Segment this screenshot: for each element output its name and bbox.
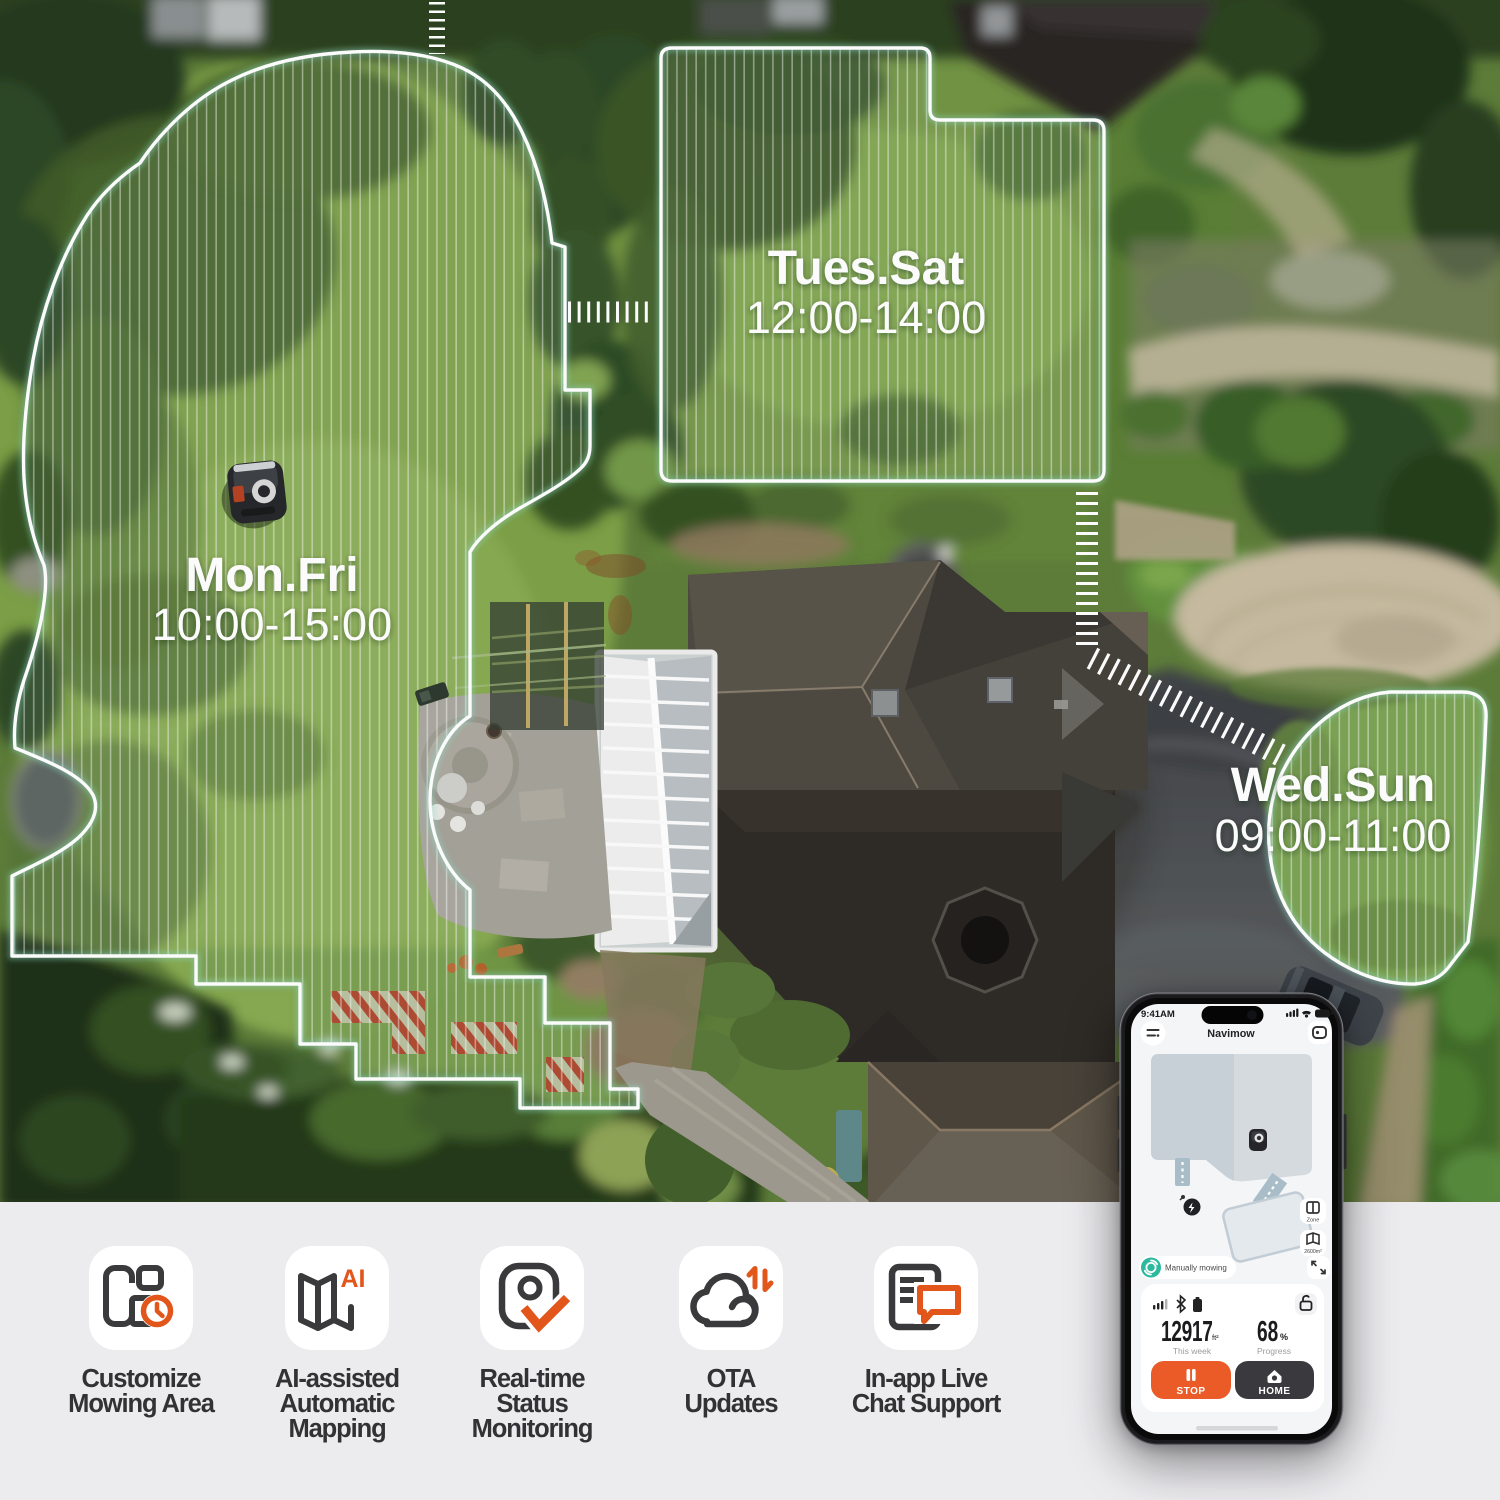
svg-text:Zone: Zone (1307, 1218, 1320, 1224)
svg-text:12917: 12917 (1161, 1316, 1213, 1348)
svg-text:STOP: STOP (1176, 1386, 1205, 1397)
svg-text:Navimow: Navimow (1207, 1028, 1255, 1040)
svg-text:HOME: HOME (1259, 1386, 1291, 1397)
svg-text:AI: AI (341, 1265, 366, 1293)
svg-text:ft²: ft² (1212, 1333, 1219, 1342)
svg-text:Manually mowing: Manually mowing (1165, 1264, 1227, 1273)
svg-text:Tues.Sat: Tues.Sat (768, 242, 965, 295)
svg-text:68: 68 (1257, 1316, 1278, 1348)
svg-text:12:00-14:00: 12:00-14:00 (746, 292, 986, 343)
svg-text:Mon.Fri: Mon.Fri (185, 549, 358, 602)
svg-text:10:00-15:00: 10:00-15:00 (152, 599, 392, 650)
svg-text:09:00-11:00: 09:00-11:00 (1215, 810, 1452, 861)
svg-text:2600m²: 2600m² (1304, 1249, 1322, 1255)
svg-text:Progress: Progress (1257, 1346, 1291, 1356)
svg-text:%: % (1280, 1332, 1288, 1342)
svg-text:9:41AM: 9:41AM (1141, 1009, 1175, 1020)
svg-text:This week: This week (1173, 1346, 1212, 1356)
svg-text:Wed.Sun: Wed.Sun (1231, 759, 1435, 812)
